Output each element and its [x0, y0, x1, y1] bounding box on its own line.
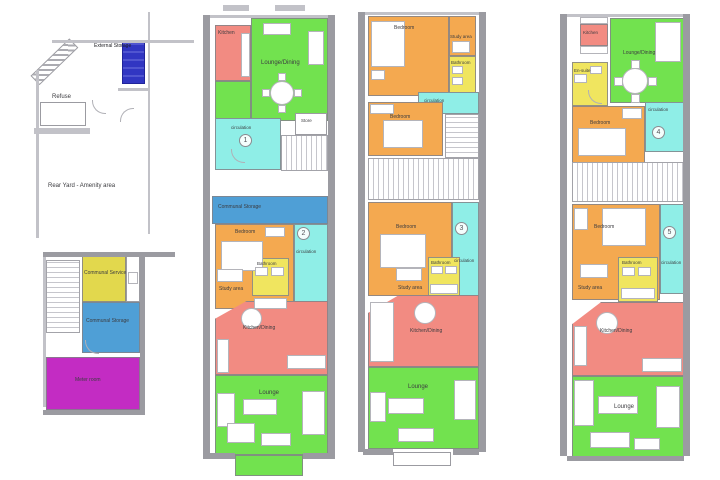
sofa [454, 380, 476, 420]
bed [578, 128, 626, 156]
communal-storage-label: Communal Storage [86, 318, 129, 324]
lounge-label: Lounge [408, 384, 428, 391]
worktop [287, 355, 326, 369]
desk [396, 268, 422, 281]
refuse-label: Refuse [52, 94, 71, 101]
ground-floor-plan: Communal Service Communal Storage Meter … [35, 246, 185, 424]
wall [358, 12, 365, 452]
staircase [46, 260, 80, 333]
unit-number-1: 1 [239, 134, 252, 147]
refuse-store [40, 102, 86, 126]
worktop [580, 17, 608, 24]
kitchen-dining-label: Kitchen/Dining [410, 328, 442, 334]
door-swing [120, 108, 134, 122]
wall [567, 456, 684, 461]
wc [271, 267, 284, 276]
wall [683, 14, 690, 456]
lounge-dining-label: Lounge/Dining [261, 60, 300, 67]
communal-storage-room [212, 196, 328, 224]
unit-number-3: 3 [455, 222, 468, 235]
bay-window [235, 455, 303, 476]
wardrobe [622, 108, 642, 119]
bath [254, 298, 287, 309]
staircase [281, 135, 328, 171]
dining-table [270, 81, 294, 105]
chair [648, 77, 657, 86]
staircase [445, 114, 479, 158]
wall [328, 15, 335, 459]
table [261, 433, 291, 446]
study-area-label: Study area [219, 286, 243, 292]
bath [430, 284, 458, 294]
wc [590, 66, 602, 74]
bath [621, 288, 655, 299]
bed [383, 120, 423, 148]
lounge-dining-room [215, 81, 251, 121]
bedroom-label: Bedroom [594, 224, 614, 230]
chair [278, 73, 286, 81]
sofa [388, 398, 424, 414]
wall [43, 252, 175, 257]
wc [638, 267, 651, 276]
chair [631, 94, 640, 103]
bathroom-label: Bathroom [451, 60, 471, 65]
staircase [368, 158, 479, 200]
wall [210, 453, 235, 459]
worktop [580, 46, 608, 54]
basin [622, 267, 635, 276]
sofa [227, 423, 255, 443]
communal-service-room [82, 256, 126, 302]
table [634, 438, 660, 450]
wall [275, 5, 305, 11]
worktop [370, 302, 394, 362]
chair [294, 89, 302, 97]
table [590, 432, 630, 448]
side-table [574, 208, 588, 230]
wc [452, 77, 463, 85]
desk [217, 269, 243, 282]
wall [560, 14, 567, 456]
lounge-label: Lounge [259, 390, 279, 397]
en-suite-label: En-suite [574, 68, 591, 73]
worktop [217, 339, 229, 373]
wall [479, 12, 486, 452]
table [398, 428, 434, 442]
sofa [574, 380, 594, 426]
worktop [574, 326, 587, 366]
wall [210, 15, 328, 18]
store-room [295, 113, 327, 135]
wall [36, 70, 39, 238]
site-plan: External Storage Refuse Rear Yard - Amen… [30, 12, 198, 240]
communal-storage-label: Communal Storage [218, 204, 261, 210]
bathroom-label: Bathroom [257, 261, 277, 266]
circulation-label: circulation [454, 258, 474, 263]
floor-plan-3: Bedroom Study area Bathroom circulation … [358, 8, 486, 470]
side-table [371, 70, 385, 80]
bed [380, 234, 426, 268]
bedroom-label: Bedroom [396, 224, 416, 230]
desk [452, 41, 470, 53]
wall [118, 88, 148, 91]
worktop [642, 358, 682, 372]
circulation-label: circulation [296, 249, 316, 254]
dining-table [622, 68, 648, 94]
basin [452, 66, 463, 74]
circulation-label: circulation [231, 125, 251, 130]
wall [203, 15, 210, 459]
wall [223, 5, 249, 11]
kitchen-room [580, 24, 608, 46]
sofa [243, 399, 277, 415]
floor-plan-4: Lounge/Dining Kitchen En-suite Bedroom c… [560, 8, 690, 470]
chair [262, 89, 270, 97]
wardrobe [370, 104, 394, 114]
floor-plan-2: Kitchen Lounge/Dining circulation 1 Stor… [203, 3, 335, 480]
wall [34, 128, 90, 134]
bedroom-label: Bedroom [390, 114, 410, 120]
lounge-dining-label: Lounge/Dining [623, 50, 655, 56]
bedroom-label: Bedroom [394, 25, 414, 31]
store-label: Store [301, 118, 312, 123]
lounge-label: Lounge [614, 404, 634, 411]
meter-room [46, 357, 140, 410]
chair [614, 77, 623, 86]
unit-number-4: 4 [652, 126, 665, 139]
kitchen-label: Kitchen [583, 30, 598, 35]
dining-table [414, 302, 436, 324]
bedroom-label: Bedroom [590, 120, 610, 126]
fixture [128, 272, 138, 284]
sofa [656, 386, 680, 428]
sofa [263, 23, 291, 35]
wall [363, 449, 393, 455]
door-swing [92, 100, 106, 114]
kitchen-label: Kitchen [218, 30, 235, 36]
study-area-label: Study area [578, 285, 602, 291]
wall [140, 252, 145, 415]
sofa [308, 31, 324, 65]
chair [278, 105, 286, 113]
wardrobe [265, 227, 285, 237]
sofa [302, 391, 325, 435]
circulation-area [660, 204, 684, 294]
study-area-label: Study area [450, 34, 472, 39]
circulation-label: circulation [648, 107, 668, 112]
basin [255, 267, 268, 276]
basin [431, 266, 443, 274]
bedroom-label: Bedroom [235, 229, 255, 235]
kitchen-dining-label: Kitchen/Dining [243, 325, 275, 331]
rear-yard-label: Rear Yard - Amenity area [48, 183, 115, 190]
external-storage-label: External Storage [94, 43, 131, 49]
chair [631, 60, 640, 69]
bathroom-label: Bathroom [622, 260, 642, 265]
wc [445, 266, 457, 274]
study-area-label: Study area [398, 285, 422, 291]
kitchen-dining-label: Kitchen/Dining [600, 328, 632, 334]
basin [574, 74, 587, 83]
wall [43, 410, 145, 415]
floor-plan-sheet: External Storage Refuse Rear Yard - Amen… [0, 0, 720, 480]
circulation-label: circulation [424, 98, 444, 103]
wall [303, 453, 328, 459]
sofa [217, 393, 235, 427]
wall [453, 449, 479, 455]
bay-window [393, 452, 451, 466]
circulation-label: circulation [661, 260, 681, 265]
wall [365, 12, 479, 15]
meter-room-label: Meter room [75, 377, 101, 383]
unit-number-2: 2 [297, 227, 310, 240]
staircase [572, 162, 684, 202]
sofa [370, 392, 386, 422]
wall [148, 12, 150, 234]
bathroom-label: Bathroom [431, 260, 451, 265]
sofa [655, 22, 681, 62]
communal-service-label: Communal Service [84, 270, 126, 276]
desk [580, 264, 608, 278]
worktop [241, 33, 250, 77]
unit-number-5: 5 [663, 226, 676, 239]
